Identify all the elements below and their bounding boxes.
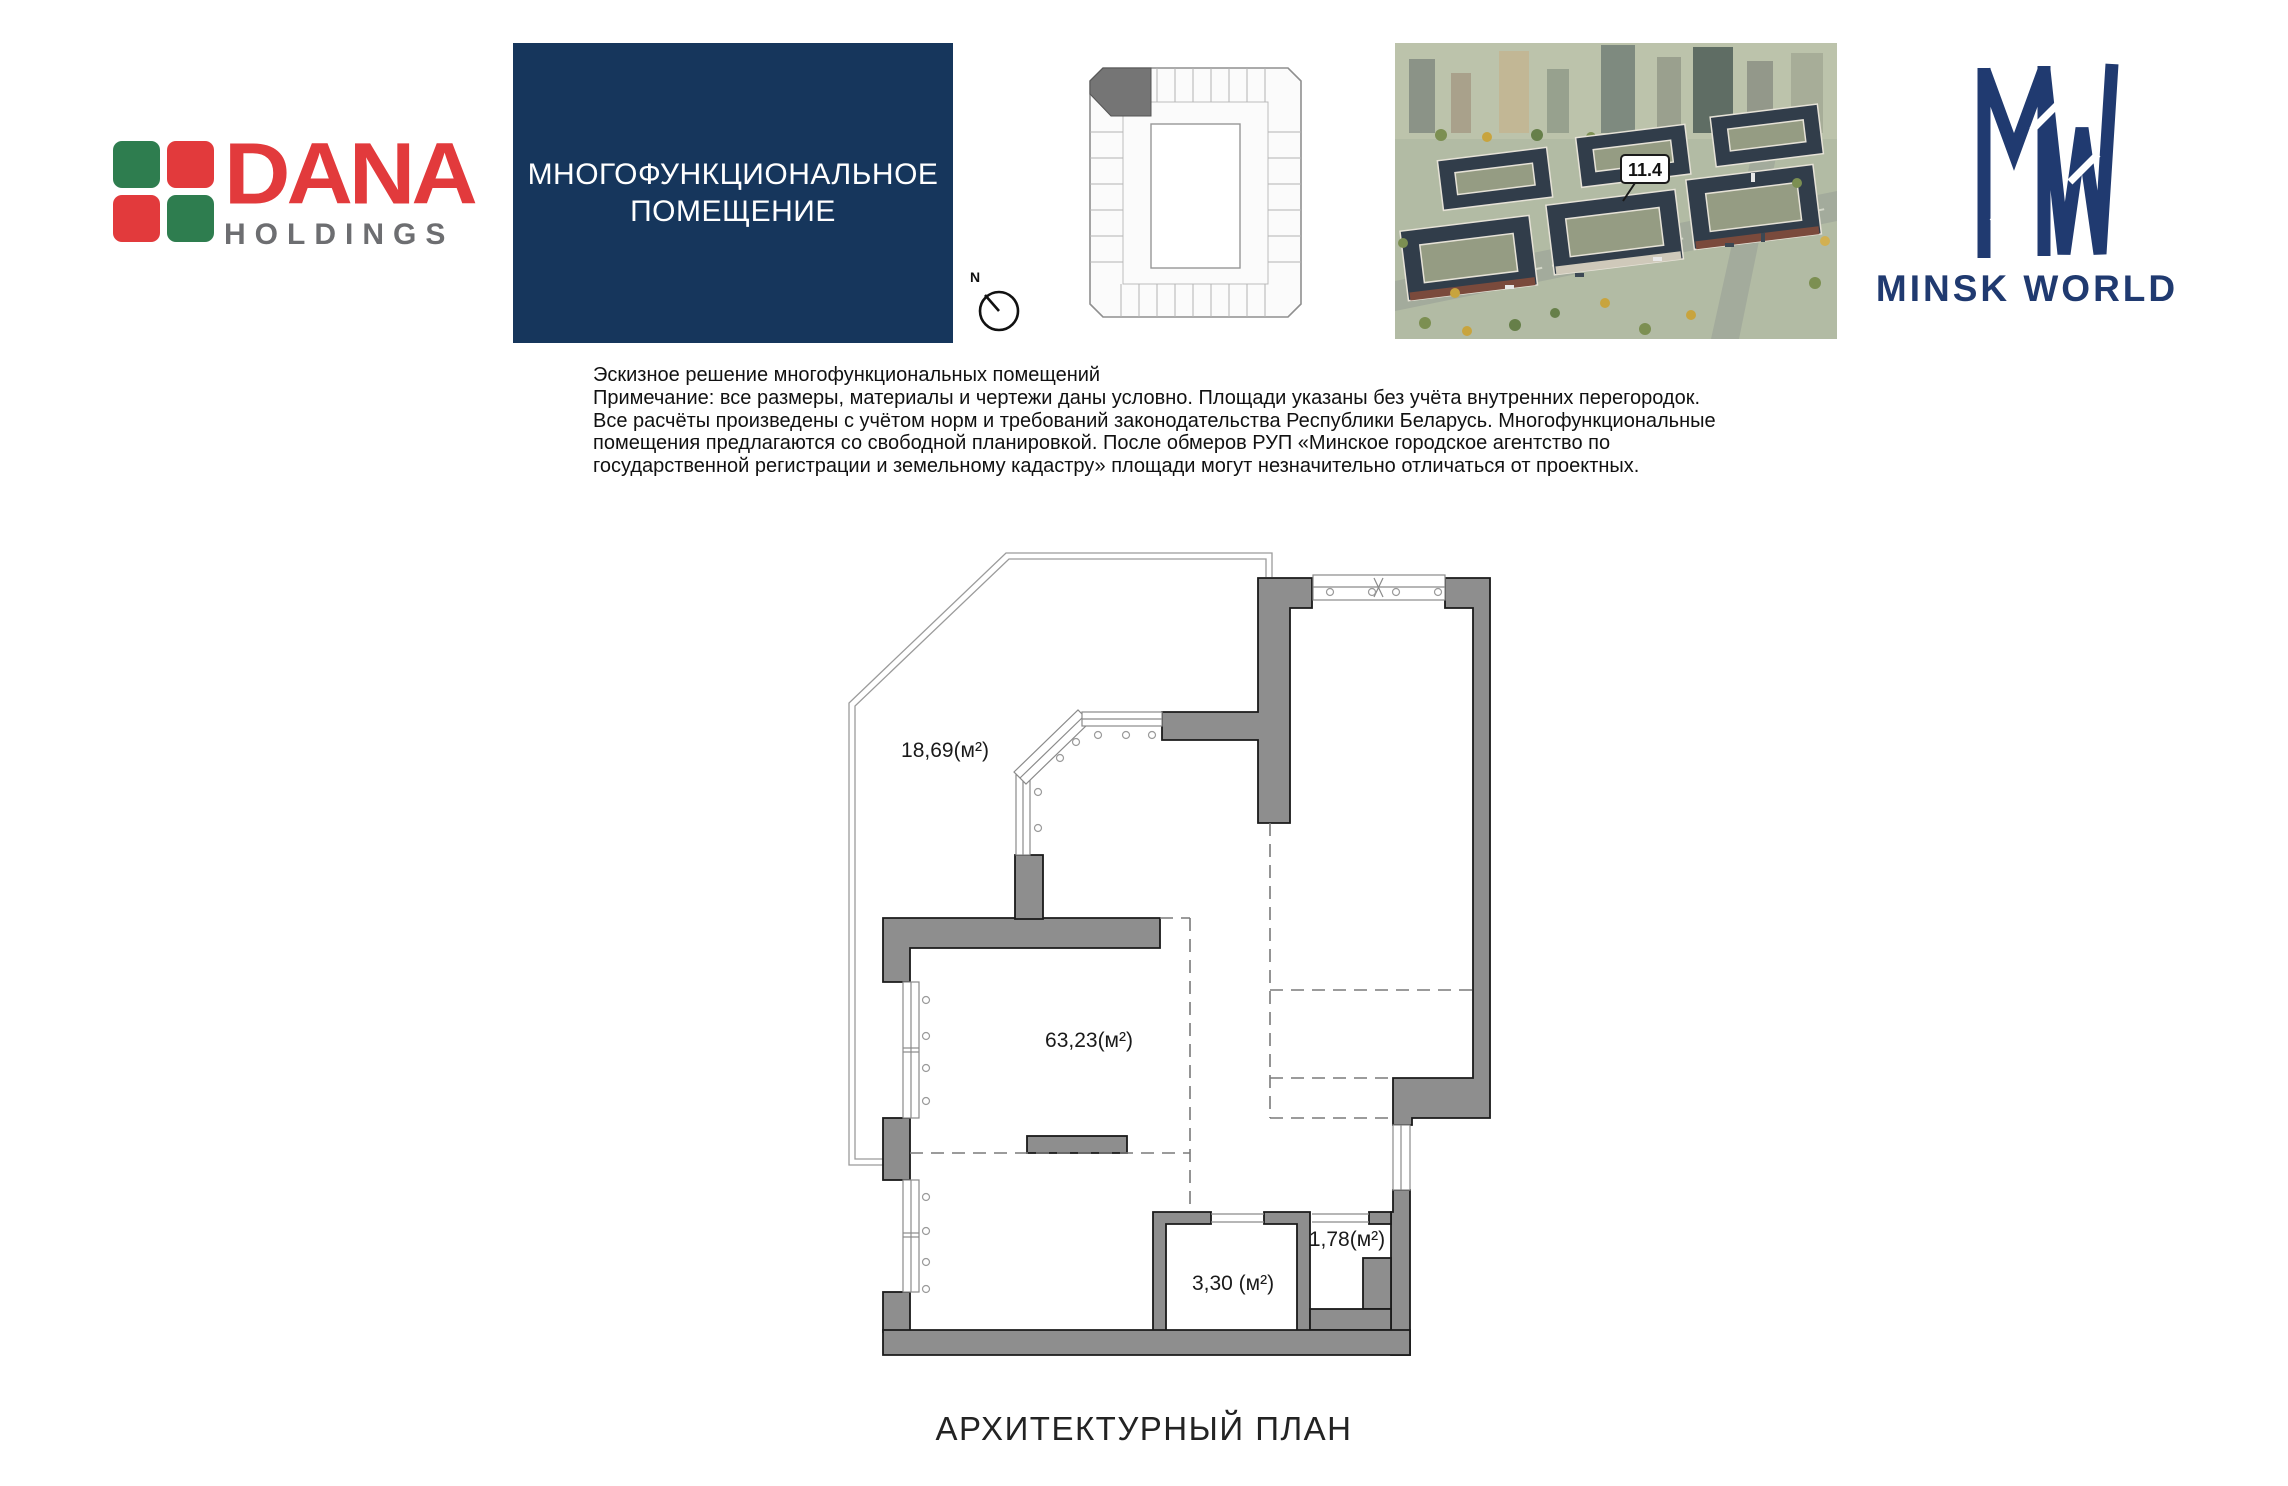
area-label-bathroom: 3,30 (м²) — [1192, 1272, 1274, 1295]
wall-southwest-block — [883, 1292, 910, 1332]
partition-stub — [1027, 1136, 1127, 1153]
dana-holdings-label: HOLDINGS — [224, 220, 474, 250]
plan-sheet: DANA HOLDINGS МНОГОФУНКЦИОНАЛЬНОЕ ПОМЕЩЕ… — [0, 0, 2288, 1486]
area-label-terrace: 18,69(м²) — [901, 739, 989, 762]
notes-line: Эскизное решение многофункциональных пом… — [593, 364, 1773, 387]
sheet-title: АРХИТЕКТУРНЫЙ ПЛАН — [0, 1410, 2288, 1448]
north-compass: N — [966, 266, 1028, 338]
wall-terrace-south — [883, 918, 1160, 982]
wall-storage-step — [1363, 1258, 1391, 1309]
dana-logo-squares-icon — [113, 141, 214, 242]
building-keyplan — [1063, 46, 1315, 338]
logo-square-green — [113, 141, 160, 188]
wall-storage-lintel — [1369, 1212, 1391, 1224]
notes-line: Все расчёты произведены с учётом норм и … — [593, 410, 1773, 433]
compass-north-label: N — [970, 269, 980, 285]
wall-bay-pier — [1015, 855, 1043, 919]
logo-square-red — [167, 141, 214, 188]
zone-dashed-lines — [910, 823, 1473, 1212]
keyplan-courtyard — [1151, 124, 1240, 268]
area-labels: 18,69(м²) 63,23(м²) 3,30 (м²) 1,78(м²) — [901, 739, 1385, 1295]
area-label-main-room: 63,23(м²) — [1045, 1029, 1133, 1052]
dana-wordmark: DANA — [224, 139, 474, 211]
compass-needle-icon — [985, 295, 999, 311]
premise-type-line2: ПОМЕЩЕНИЕ — [630, 193, 836, 231]
premise-type-banner: МНОГОФУНКЦИОНАЛЬНОЕ ПОМЕЩЕНИЕ — [513, 43, 953, 343]
notes-line: государственной регистрации и земельному… — [593, 455, 1773, 478]
wall-right-room-west — [1162, 578, 1312, 823]
logo-square-green — [167, 195, 214, 242]
walls — [883, 578, 1490, 1355]
notes-line: помещения предлагаются со свободной план… — [593, 432, 1773, 455]
aerial-render: 11.4 — [1395, 43, 1837, 339]
notes-block: Эскизное решение многофункциональных пом… — [593, 364, 1773, 478]
area-label-storage: 1,78(м²) — [1309, 1228, 1385, 1251]
logo-square-red — [113, 195, 160, 242]
wall-west-pier — [883, 1118, 910, 1180]
dana-holdings-logo: DANA HOLDINGS — [113, 139, 493, 249]
floor-plan: 18,69(м²) 63,23(м²) 3,30 (м²) 1,78(м²) — [845, 545, 1510, 1375]
minsk-world-wordmark: MINSK WORLD — [1872, 268, 2182, 310]
building-number-label: 11.4 — [1628, 160, 1662, 180]
wall-south — [883, 1330, 1410, 1355]
dana-logo-text: DANA HOLDINGS — [224, 139, 474, 250]
wall-right-room-east — [1393, 578, 1490, 1125]
notes-line: Примечание: все размеры, материалы и чер… — [593, 387, 1773, 410]
minsk-world-monogram-icon — [1952, 56, 2122, 266]
premise-type-line1: МНОГОФУНКЦИОНАЛЬНОЕ — [528, 156, 939, 194]
wall-storage-south — [1310, 1309, 1391, 1330]
